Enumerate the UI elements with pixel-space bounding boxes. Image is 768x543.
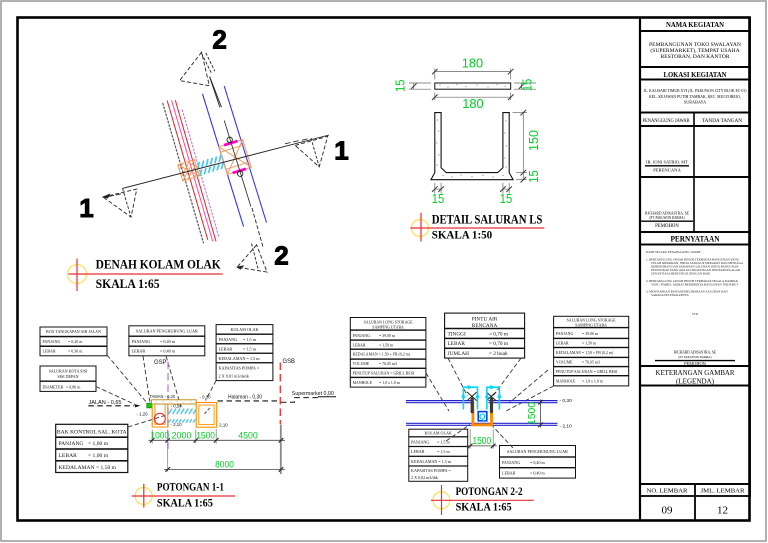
svg-text:PANJANG: PANJANG: [219, 337, 238, 342]
svg-text:150: 150: [526, 130, 541, 151]
svg-text:- 0,30: - 0,30: [200, 395, 212, 400]
svg-text:PANJANG: PANJANG: [411, 440, 429, 445]
svg-text:LEBAR: LEBAR: [59, 453, 78, 459]
svg-text:DENAH KOLAM OLAK: DENAH KOLAM OLAK: [96, 258, 221, 272]
svg-text:15: 15: [526, 170, 541, 183]
svg-text:1000: 1000: [151, 431, 170, 442]
svg-text:1500: 1500: [472, 436, 491, 447]
svg-text:= 1,00 m: = 1,00 m: [88, 453, 109, 459]
svg-text:SKALA 1:65: SKALA 1:65: [96, 277, 160, 291]
svg-text:NAMA KEGIATAN: NAMA KEGIATAN: [666, 20, 724, 29]
svg-text:GSB: GSB: [283, 359, 296, 365]
svg-text:15: 15: [520, 79, 535, 92]
svg-text:TINGGI: TINGGI: [448, 331, 466, 337]
svg-text:09: 09: [662, 505, 674, 517]
svg-text:TTD: TTD: [692, 312, 699, 316]
svg-text:MANHOLE: MANHOLE: [556, 379, 576, 383]
svg-text:PANJANG: PANJANG: [132, 339, 151, 344]
svg-text:4500: 4500: [238, 431, 258, 442]
svg-text:(LEGENDA): (LEGENDA): [676, 376, 714, 385]
svg-text:VOLUME: VOLUME: [353, 362, 370, 366]
svg-text:- 2,10: - 2,10: [560, 424, 573, 430]
svg-text:NO. LEMBAR: NO. LEMBAR: [647, 488, 689, 495]
svg-text:15: 15: [393, 80, 408, 93]
svg-text:JUMLAH: JUMLAH: [448, 351, 470, 357]
svg-text:180: 180: [462, 96, 483, 111]
svg-text:KAMI SELAKU PENANGGUNG JAWAB :: KAMI SELAKU PENANGGUNG JAWAB :: [646, 250, 702, 254]
svg-text:BAK KONTROL SAL. KOTA: BAK KONTROL SAL. KOTA: [57, 429, 127, 435]
svg-text:KAPASITAS POMPA =: KAPASITAS POMPA =: [219, 365, 260, 370]
svg-text:KAPASITAS POMPA =: KAPASITAS POMPA =: [411, 468, 451, 473]
svg-text:TANDA TANGAN: TANDA TANGAN: [702, 118, 742, 124]
svg-text:SENANTIASA BERFUNGSI DENGAN BA: SENANTIASA BERFUNGSI DENGAN BAIK: [651, 272, 711, 276]
svg-text:PENANGGUNG JAWAB: PENANGGUNG JAWAB: [643, 118, 690, 124]
svg-text:RENCANA: RENCANA: [472, 323, 498, 329]
svg-text:JALAN - 0,65: JALAN - 0,65: [89, 400, 122, 406]
svg-text:GSP: GSP: [154, 360, 167, 366]
svg-text:VOLUME: VOLUME: [556, 361, 573, 365]
svg-text:SKALA 1:65: SKALA 1:65: [456, 499, 512, 513]
svg-text:YANG TIMBUL AKIBAT BERDIRINYA: YANG TIMBUL AKIBAT BERDIRINYA BANGUNAN T…: [651, 283, 738, 287]
svg-text:SAMPING UTARA: SAMPING UTARA: [372, 325, 404, 329]
svg-text:(SUPERMARKET), TEMPAT USAHA: (SUPERMARKET), TEMPAT USAHA: [650, 47, 739, 54]
svg-text:LEBAR: LEBAR: [502, 471, 516, 476]
svg-text:15: 15: [432, 191, 445, 206]
svg-text:PEMOHON: PEMOHON: [655, 224, 679, 229]
svg-text:2: 2: [212, 25, 226, 55]
svg-text:PANJANG: PANJANG: [353, 334, 371, 338]
svg-text:LEBAR: LEBAR: [411, 449, 425, 454]
svg-text:PANJANG: PANJANG: [43, 339, 61, 344]
svg-text:SALURAN KOTA SISI: SALURAN KOTA SISI: [49, 369, 88, 374]
svg-text:SISI DEPAN: SISI DEPAN: [57, 374, 78, 379]
svg-text:SALURAN LONG STORAGE: SALURAN LONG STORAGE: [567, 318, 617, 322]
svg-text:2000: 2000: [172, 431, 192, 442]
svg-text:Q: Q: [479, 411, 486, 421]
svg-text:Halaman - 0,30: Halaman - 0,30: [228, 395, 262, 401]
svg-text:PERNYATAAN: PERNYATAAN: [671, 234, 721, 244]
svg-text:POTONGAN 1-1: POTONGAN 1-1: [157, 480, 224, 494]
svg-text:LEBAR: LEBAR: [353, 343, 366, 347]
svg-text:SAMPING UTARA: SAMPING UTARA: [575, 323, 607, 327]
svg-text:POTONGAN 2-2: POTONGAN 2-2: [456, 484, 523, 498]
svg-text:DIAMETER: DIAMETER: [43, 385, 64, 390]
svg-text:KEDALAMAN = 1,50 m: KEDALAMAN = 1,50 m: [59, 465, 117, 471]
svg-text:LEBAR: LEBAR: [219, 346, 233, 351]
svg-text:PANJANG: PANJANG: [556, 332, 574, 336]
svg-text:PENUTUP SALURAN = GRILL BESI: PENUTUP SALURAN = GRILL BESI: [556, 370, 618, 374]
svg-text:LOKASI KEGIATAN: LOKASI KEGIATAN: [664, 70, 727, 79]
svg-text:TAMAN - 0,20: TAMAN - 0,20: [150, 394, 176, 399]
svg-text:KOLAM OLAK: KOLAM OLAK: [424, 431, 451, 436]
svg-text:SURABAYA: SURABAYA: [684, 100, 706, 105]
svg-text:PANJANG: PANJANG: [502, 460, 520, 465]
svg-text:12: 12: [717, 505, 728, 517]
svg-text:2: 2: [274, 241, 288, 271]
svg-text:JL. KALISARI TIMUR XVI (JL. PA: JL. KALISARI TIMUR XVI (JL. PAKUWON CITY…: [644, 88, 748, 93]
svg-text:1: 1: [334, 136, 348, 166]
svg-text:15: 15: [500, 191, 513, 206]
svg-text:SARANA PELENGKAPNYA: SARANA PELENGKAPNYA: [651, 293, 689, 297]
svg-text:BOX TANGKAPAN AIR JALAN: BOX TANGKAPAN AIR JALAN: [46, 329, 101, 334]
svg-text:SKALA 1:65: SKALA 1:65: [157, 495, 213, 509]
svg-text:(PT. PAKUWON DARMA): (PT. PAKUWON DARMA): [650, 216, 686, 220]
svg-text:= 2 buah: = 2 buah: [489, 351, 508, 357]
svg-text:= 1,00 m: = 1,00 m: [88, 441, 109, 447]
svg-text:LEBAR: LEBAR: [556, 342, 569, 346]
svg-text:PANJANG: PANJANG: [59, 441, 84, 447]
svg-text:SALURAN LONG STORAGE: SALURAN LONG STORAGE: [364, 320, 414, 324]
svg-text:PENUTUP SALURAN = GRILL BESI: PENUTUP SALURAN = GRILL BESI: [353, 372, 415, 376]
svg-text:PERENCANA: PERENCANA: [653, 168, 681, 173]
svg-text:2,10: 2,10: [219, 422, 228, 427]
svg-text:LEBAR: LEBAR: [448, 341, 466, 347]
svg-text:1500: 1500: [527, 401, 538, 425]
svg-text:Supermarket 0,00: Supermarket 0,00: [292, 391, 334, 397]
svg-text:DETAIL SALURAN LS: DETAIL SALURAN LS: [432, 213, 543, 227]
svg-text:RESTORAN, DAN KANTOR: RESTORAN, DAN KANTOR: [661, 54, 730, 60]
svg-text:1: 1: [79, 193, 93, 223]
svg-text:- 2,10: - 2,10: [171, 422, 183, 427]
svg-text:PINTU AIR: PINTU AIR: [472, 316, 498, 322]
svg-text:180: 180: [462, 56, 483, 71]
svg-text:MANHOLE: MANHOLE: [353, 381, 373, 385]
svg-text:JML. LEMBAR: JML. LEMBAR: [701, 488, 746, 495]
svg-text:- 0,30: - 0,30: [560, 398, 573, 404]
svg-text:KOLAM OLAK: KOLAM OLAK: [230, 327, 258, 332]
svg-text:(PT. PAKUWON DARMA): (PT. PAKUWON DARMA): [679, 355, 713, 359]
svg-text:LEBAR: LEBAR: [132, 349, 146, 354]
svg-text:- 1,20: - 1,20: [137, 412, 149, 417]
svg-text:SKALA 1:50: SKALA 1:50: [432, 228, 493, 242]
svg-text:= 0,70 m: = 0,70 m: [489, 341, 509, 347]
svg-text:1500: 1500: [196, 431, 215, 442]
svg-text:LEBAR: LEBAR: [43, 349, 56, 354]
svg-text:8000: 8000: [215, 460, 234, 471]
svg-text:SALURAN PENGHUBUNG LUAR: SALURAN PENGHUBUNG LUAR: [507, 449, 568, 454]
svg-text:- 0,50: - 0,50: [171, 403, 183, 408]
svg-text:SALURAN PENGHUBUNG LUAR: SALURAN PENGHUBUNG LUAR: [136, 329, 198, 334]
svg-text:= 0,70 m: = 0,70 m: [489, 331, 509, 337]
